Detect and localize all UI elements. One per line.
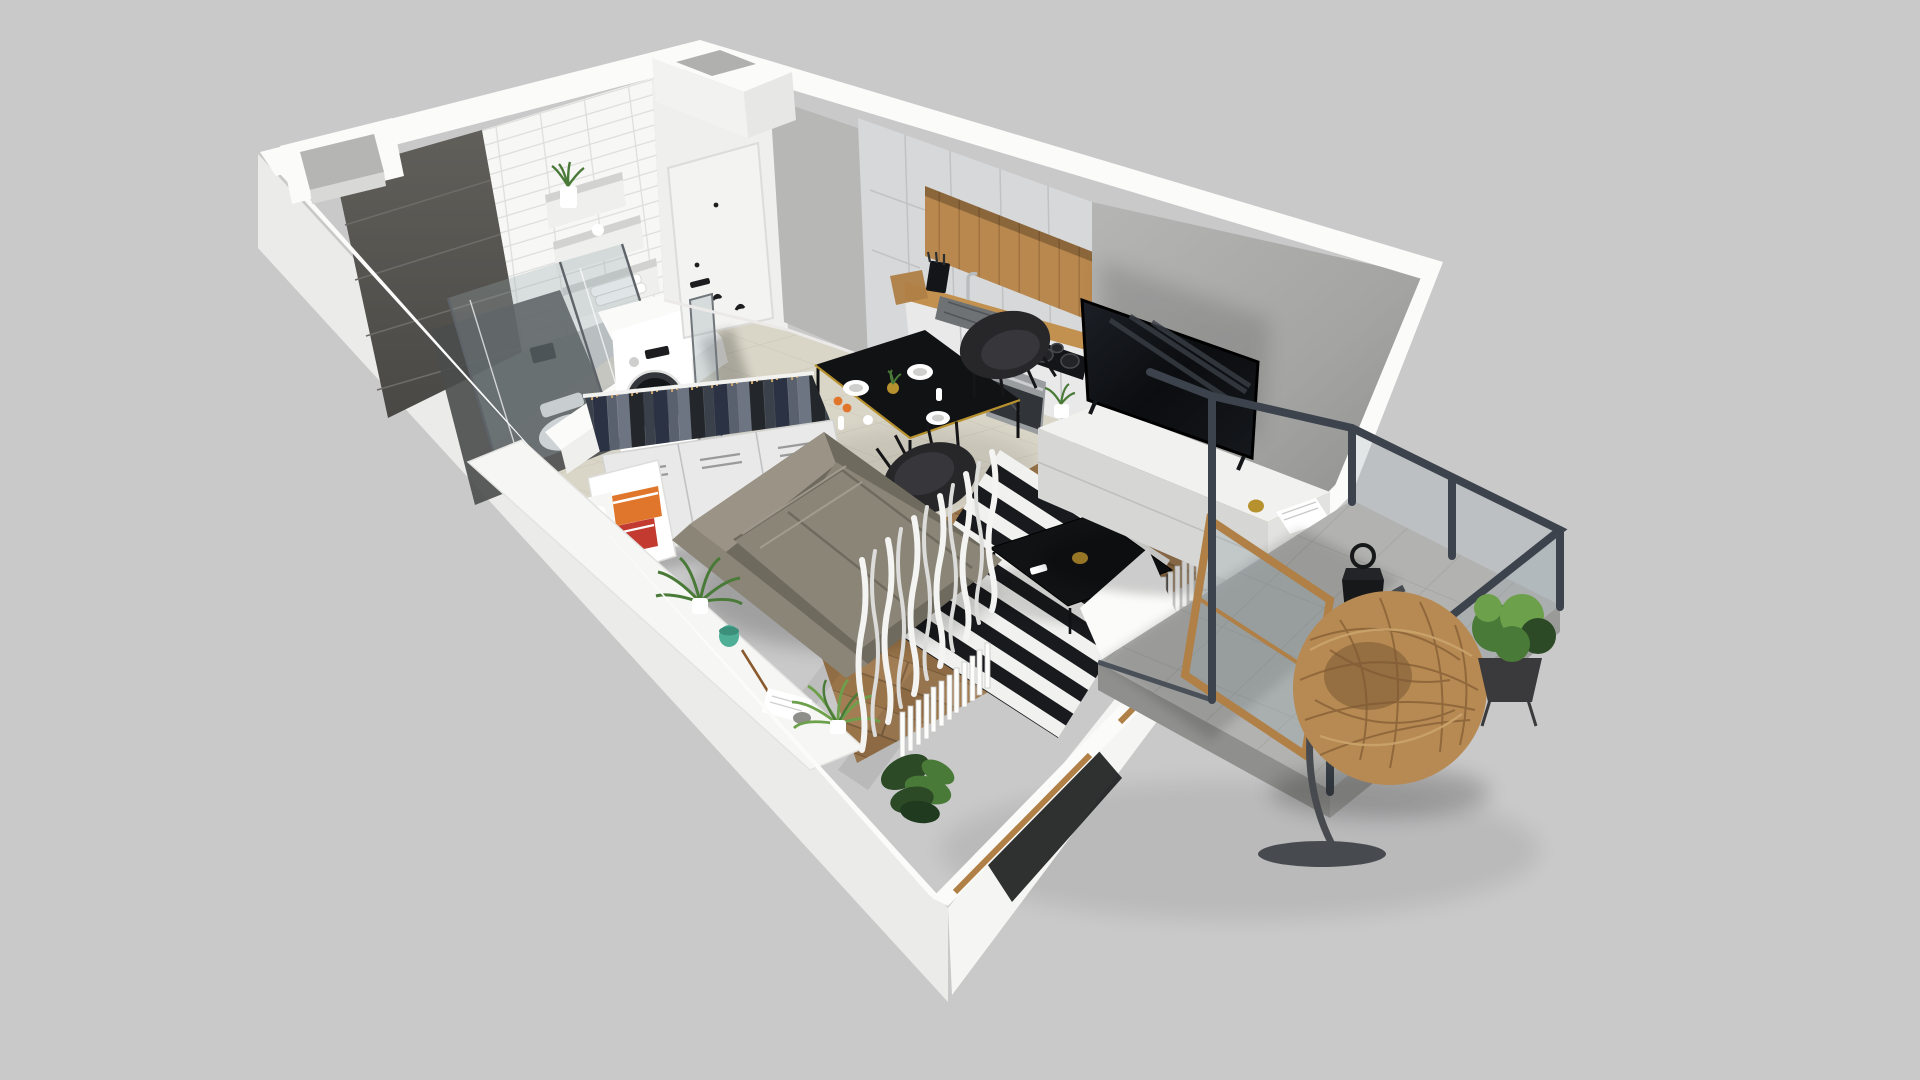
chair-stand-base: [1258, 841, 1386, 867]
washer-knob: [629, 357, 639, 367]
floorplan-render: 3D isometric cutaway floor-plan render o…: [0, 0, 1920, 1080]
corner-wall-shaded: [770, 98, 868, 358]
shelf-cup: [592, 224, 604, 236]
chair-opening: [1324, 642, 1412, 710]
apartment-scene: [0, 0, 1920, 1080]
gold-cup: [1248, 500, 1264, 513]
door-lock: [695, 263, 700, 268]
entry-door: [668, 143, 773, 338]
teal-cup: [719, 625, 739, 647]
door-peephole: [714, 203, 719, 208]
